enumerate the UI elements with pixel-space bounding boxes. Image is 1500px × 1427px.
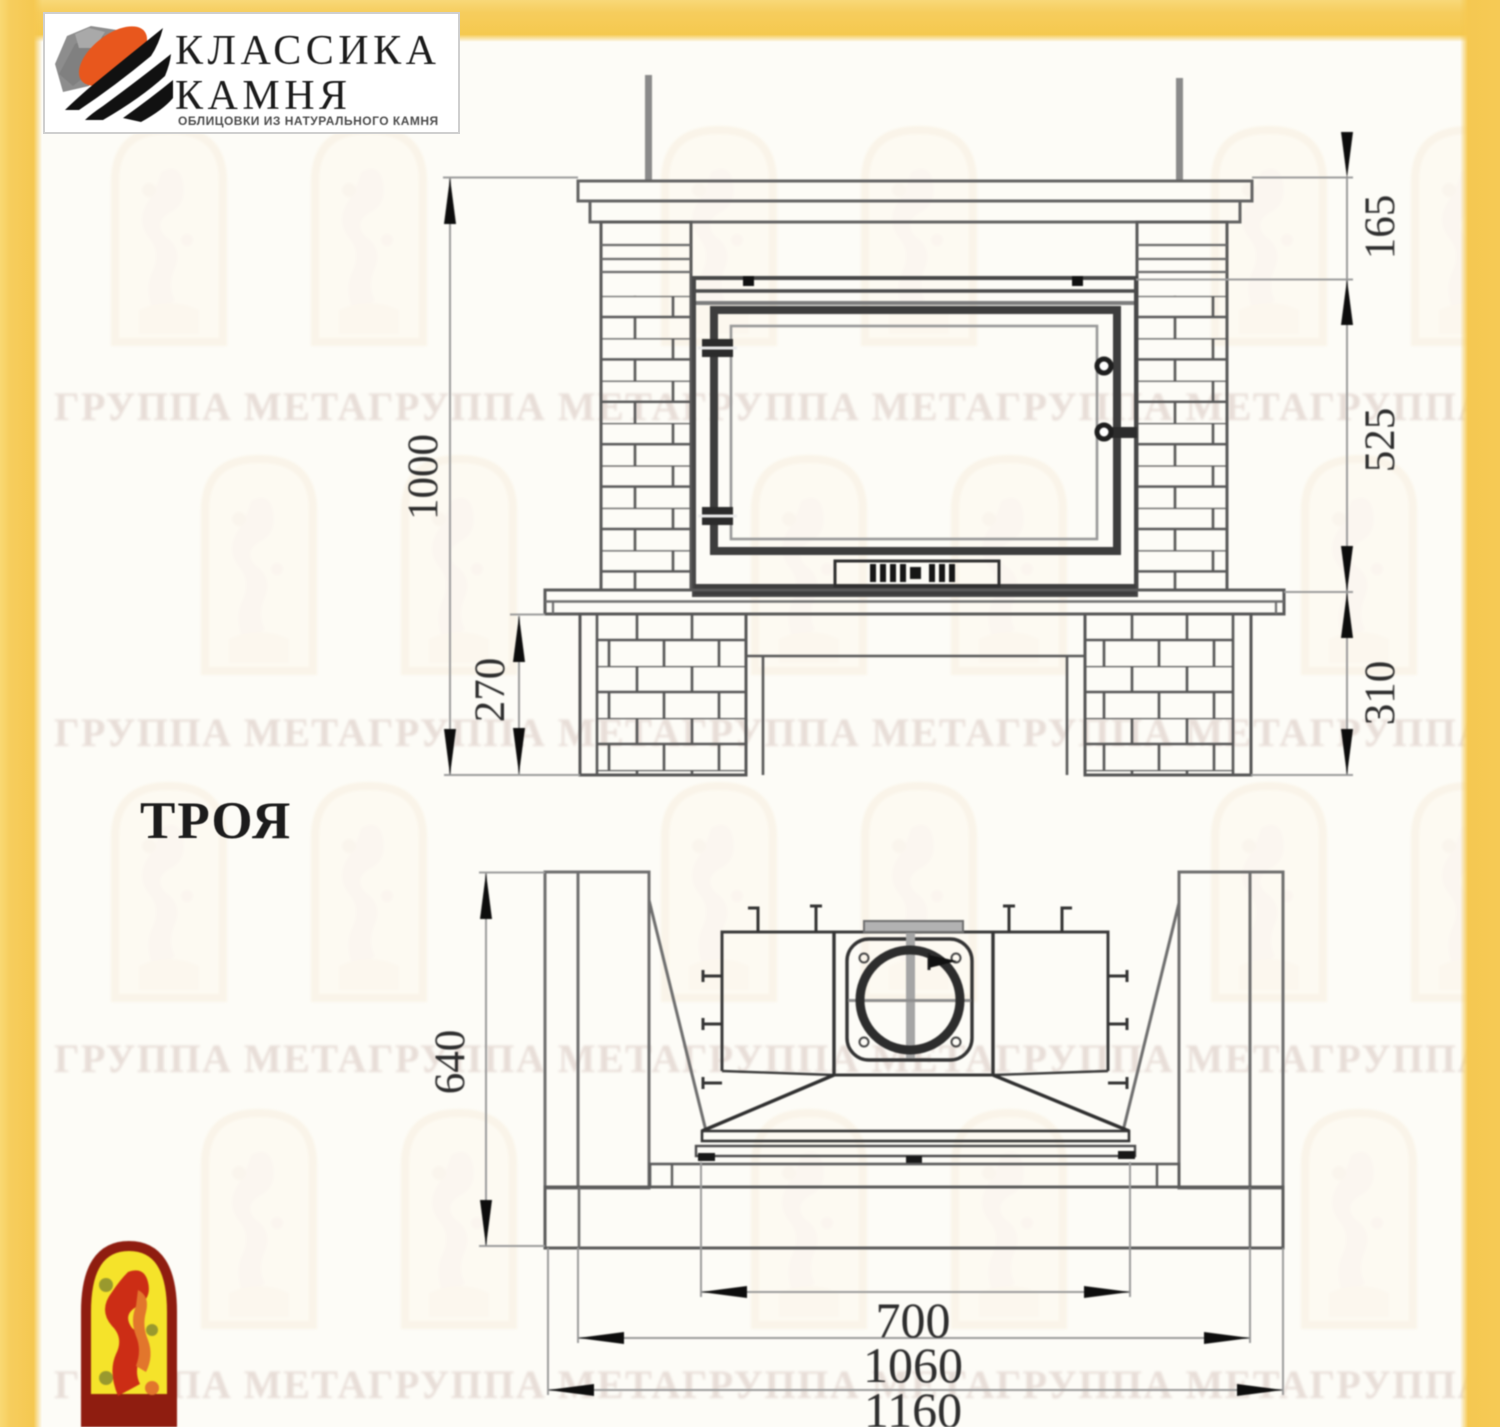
svg-text:1160: 1160 — [864, 1382, 962, 1427]
svg-text:525: 525 — [1357, 408, 1404, 473]
svg-text:165: 165 — [1357, 195, 1404, 260]
svg-text:270: 270 — [467, 658, 514, 723]
svg-text:1000: 1000 — [400, 434, 447, 520]
svg-text:640: 640 — [427, 1030, 474, 1095]
svg-text:310: 310 — [1357, 661, 1404, 726]
